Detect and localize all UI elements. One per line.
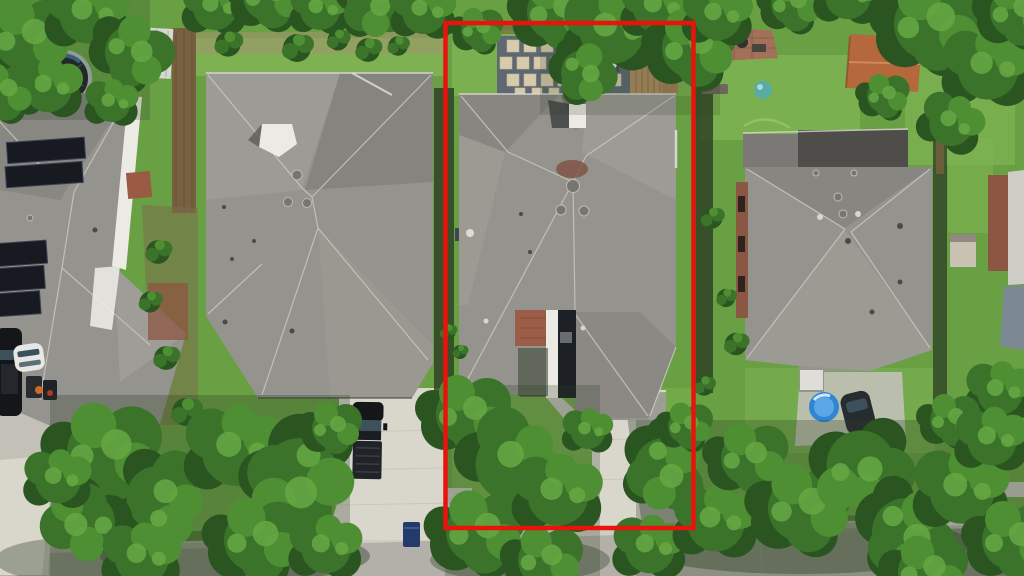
roof-vent bbox=[834, 193, 842, 201]
roof-dot bbox=[484, 319, 489, 324]
porch-notch bbox=[800, 370, 823, 390]
roof-vent bbox=[556, 205, 566, 215]
roof-dot bbox=[93, 228, 98, 233]
aerial-photo bbox=[0, 0, 1024, 576]
side-window bbox=[738, 196, 745, 212]
roof-dot bbox=[290, 329, 295, 334]
house-right bbox=[736, 129, 932, 392]
dark-suv bbox=[0, 328, 22, 416]
roof-dot bbox=[223, 320, 228, 325]
roof-vent bbox=[27, 215, 33, 221]
small-shed-roof-edge bbox=[950, 234, 976, 242]
side-window bbox=[738, 276, 745, 292]
roof-vent bbox=[813, 170, 819, 176]
satellite-dish bbox=[466, 229, 474, 237]
teal-ball bbox=[754, 81, 772, 99]
orange-item bbox=[35, 386, 43, 394]
house-second bbox=[206, 73, 433, 398]
far-right-brick-wall bbox=[988, 175, 1010, 271]
roof-dot bbox=[845, 238, 851, 244]
roof-vent bbox=[851, 170, 857, 176]
brick-chimney bbox=[126, 171, 152, 199]
roof-vent bbox=[292, 170, 302, 180]
roof-dot bbox=[855, 211, 861, 217]
roof-dot bbox=[230, 257, 234, 261]
far-right-pale-roof bbox=[1008, 170, 1024, 285]
roof-dot bbox=[870, 310, 875, 315]
white-car bbox=[12, 342, 45, 373]
roof-dot bbox=[897, 223, 903, 229]
roof-dot bbox=[817, 214, 823, 220]
roof-dot bbox=[519, 212, 523, 216]
roof-dot bbox=[898, 280, 903, 285]
rear-roof-section bbox=[798, 130, 908, 167]
roof-dot bbox=[222, 205, 226, 209]
roof-vent bbox=[839, 210, 847, 218]
roof-vent bbox=[303, 199, 312, 208]
patio-furniture bbox=[752, 44, 766, 52]
far-right-blue-roof bbox=[1000, 285, 1024, 350]
house-highlighted bbox=[459, 94, 676, 420]
roof-vent bbox=[579, 206, 589, 216]
courtyard-entry bbox=[515, 310, 576, 398]
blue-street-bin bbox=[403, 522, 420, 547]
side-window bbox=[738, 236, 745, 252]
roof-dot bbox=[252, 239, 256, 243]
roof-dot bbox=[581, 326, 586, 331]
rust-stain bbox=[556, 160, 588, 178]
roof-vent bbox=[567, 180, 580, 193]
aerial-photo-stage bbox=[0, 0, 1024, 576]
rear-roof-left bbox=[743, 134, 798, 167]
ball-glint bbox=[757, 84, 763, 90]
roof-vent bbox=[284, 198, 293, 207]
kiddie-pool bbox=[809, 392, 839, 422]
roof-dot bbox=[528, 250, 532, 254]
